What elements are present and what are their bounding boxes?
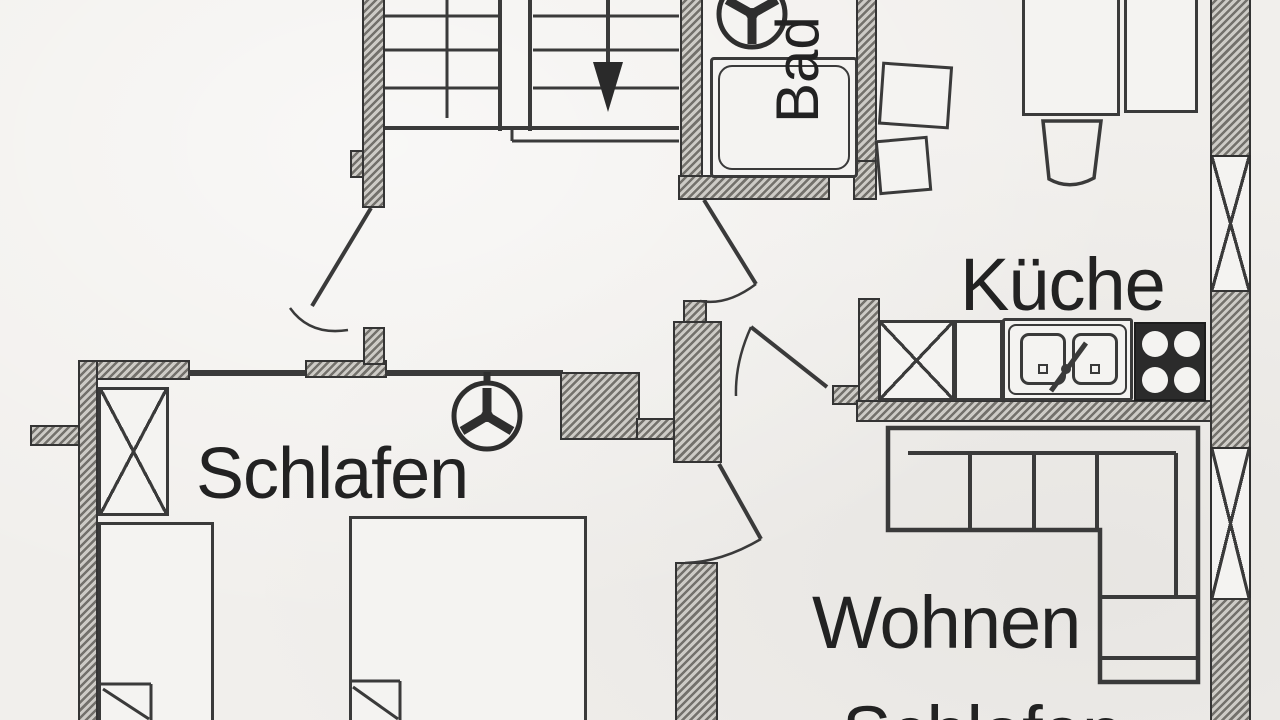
chair — [1043, 121, 1101, 185]
plan-linework — [0, 0, 1280, 720]
bed-1-fold — [100, 684, 151, 720]
room-label-kueche: Küche — [960, 248, 1165, 322]
entrance-door — [290, 208, 371, 331]
room-label-bad: Bad — [768, 0, 828, 123]
kitchen-door — [736, 327, 827, 396]
wohnen-door — [685, 464, 761, 563]
bed-2-fold — [351, 681, 400, 720]
bad-door — [700, 200, 756, 302]
staircase — [385, 0, 679, 141]
faucet-icon — [1051, 343, 1086, 391]
floorplan-scan: Schlafen Küche Wohnen Schlafen Bad — [0, 0, 1280, 720]
room-label-wohnen: Wohnen — [812, 586, 1080, 660]
room-label-schlafen-2: Schlafen — [842, 696, 1122, 720]
room-label-schlafen-1: Schlafen — [196, 438, 468, 510]
